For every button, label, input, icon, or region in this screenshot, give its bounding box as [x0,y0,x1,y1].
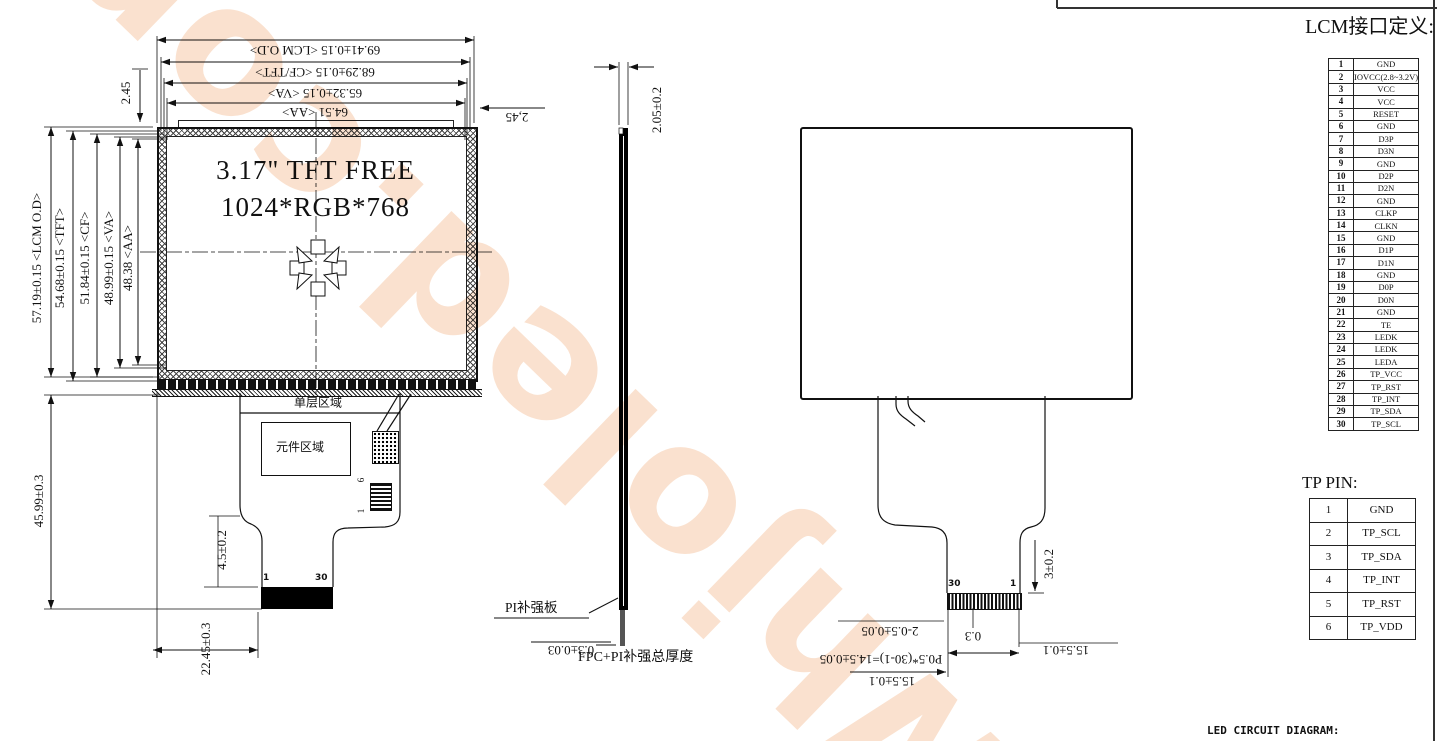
fpc-pin30-label: 30 [315,574,328,584]
dim-aa-width: 64.51 <AA> [282,105,348,119]
pin-name: CLKP [1354,207,1419,219]
dim-15-5-left: 15.5±0.1 [869,674,915,688]
screen-resolution-text: 1024*RGB*768 [166,192,465,223]
dim-bezel-right: 2,45 [506,110,529,124]
dim-fpc-height: 45.99±0.3 [32,475,46,528]
pin-name: D3N [1354,145,1419,157]
table-row: 3VCC [1329,83,1419,95]
table-row: 2TP_SCL [1310,522,1416,546]
pin-number: 25 [1329,356,1354,368]
table-row: 5TP_RST [1310,593,1416,617]
single-layer-area-label: 单层区域 [294,396,342,409]
dim-bump: 2-0.5±0.05 [862,624,919,638]
pin-name: D0P [1354,282,1419,294]
pin-number: 8 [1329,145,1354,157]
dim-15-5-right: 15.5±0.1 [1043,643,1089,657]
dim-aa-height: 48.38 <AA> [121,225,135,291]
table-row: 9GND [1329,158,1419,170]
pin-name: TP_SCL [1354,418,1419,430]
table-row: 13CLKP [1329,207,1419,219]
pin-number: 3 [1329,83,1354,95]
pin-name: D3P [1354,133,1419,145]
pin-name: TE [1354,319,1419,331]
pin-number: 14 [1329,220,1354,232]
pin-name: VCC [1354,83,1419,95]
dim-fpc-offset: 22.45±0.3 [199,623,213,676]
pin-number: 27 [1329,381,1354,393]
pin-name: TP_SCL [1348,522,1416,546]
pin-name: D2N [1354,182,1419,194]
fpc-total-thickness-label: FPC+PI补强总厚度 [578,650,693,665]
table-row: 7D3P [1329,133,1419,145]
pin-name: D1N [1354,257,1419,269]
pin-name: RESET [1354,108,1419,120]
dim-va-height: 48.99±0.15 <VA> [102,211,116,305]
tp-pin-title: TP PIN: [1302,474,1358,493]
side-view-pi-stiffener [620,610,625,646]
pin-name: GND [1354,59,1419,71]
back-fpc-connector [947,593,1022,610]
back-view-outline [800,127,1133,400]
table-row: 4VCC [1329,96,1419,108]
pin-name: GND [1354,120,1419,132]
pin-name: TP_INT [1348,569,1416,593]
table-row: 21GND [1329,306,1419,318]
table-row: 18GND [1329,269,1419,281]
pin-name: D2P [1354,170,1419,182]
dim-pin-pitch: P0.5*(30-1)=14.5±0.05 [820,652,942,666]
pin-number: 13 [1329,207,1354,219]
pin-number: 19 [1329,282,1354,294]
table-row: 30TP_SCL [1329,418,1419,430]
pin-number: 24 [1329,343,1354,355]
table-row: 6TP_VDD [1310,616,1416,640]
table-row: 12GND [1329,195,1419,207]
fpc-component-pad [372,431,399,464]
table-row: 11D2N [1329,182,1419,194]
pin-number: 7 [1329,133,1354,145]
pin-name: IOVCC(2.8~3.2V) [1354,71,1419,83]
lcm-pin-table: 1GND2IOVCC(2.8~3.2V)3VCC4VCC5RESET6GND7D… [1328,58,1419,431]
pin-number: 30 [1329,418,1354,430]
pi-stiffener-label: PI补强板 [505,601,558,616]
dim-thickness: 2.05±0.2 [650,87,664,133]
pin-name: TP_VCC [1354,368,1419,380]
fpc-6pin-connector [370,483,392,511]
pin-number: 1 [1310,499,1348,523]
pin-number: 23 [1329,331,1354,343]
dim-cf-tft-width: 68.29±0.15 <CF/TFT> [255,65,375,79]
pin-name: D1P [1354,244,1419,256]
dim-0-3: 0.3 [965,629,981,643]
pin-name: LEDK [1354,331,1419,343]
pin-number: 6 [1310,616,1348,640]
pin-name: D0N [1354,294,1419,306]
pin-name: TP_INT [1354,393,1419,405]
pin-name: TP_SDA [1354,405,1419,417]
dim-connector-depth: 3±0.2 [1042,549,1056,579]
pin-number: 15 [1329,232,1354,244]
table-row: 15GND [1329,232,1419,244]
dim-bezel-left: 2.45 [119,82,133,105]
pin-number: 28 [1329,393,1354,405]
table-row: 14CLKN [1329,220,1419,232]
table-row: 24LEDK [1329,343,1419,355]
table-row: 28TP_INT [1329,393,1419,405]
component-area-label: 元件区域 [276,441,324,454]
pin-name: LEDA [1354,356,1419,368]
dim-lcm-od-width: 69.41±0.15 <LCM O.D> [250,43,381,57]
table-row: 17D1N [1329,257,1419,269]
pin-name: GND [1354,232,1419,244]
led-circuit-diagram-label: LED CIRCUIT DIAGRAM: [1207,725,1339,737]
lcm-interface-title: LCM接口定义: [1294,16,1434,38]
pin-number: 4 [1329,96,1354,108]
fpc-pin1-label: 1 [263,574,269,584]
dim-fpc-tail: 4.5±0.2 [215,530,229,570]
pin-number: 9 [1329,158,1354,170]
pin-number: 5 [1310,593,1348,617]
dim-lcm-od-height: 57.19±0.15 <LCM O.D> [30,193,44,324]
engineering-drawing: 3.17" TFT FREE 1024*RGB*768 单层区域 元件区域 6 … [0,0,1437,741]
dim-fpc-thickness: 0.3±0.03 [548,643,594,657]
table-row: 6GND [1329,120,1419,132]
pin-name: VCC [1354,96,1419,108]
pin-number: 20 [1329,294,1354,306]
table-row: 8D3N [1329,145,1419,157]
table-row: 16D1P [1329,244,1419,256]
pin-name: TP_RST [1354,381,1419,393]
pin-number: 5 [1329,108,1354,120]
pin-name: GND [1354,158,1419,170]
pin-name: TP_VDD [1348,616,1416,640]
pin-number: 1 [1329,59,1354,71]
table-row: 25LEDA [1329,356,1419,368]
pin-name: GND [1354,195,1419,207]
tp-pin-table: 1GND2TP_SCL3TP_SDA4TP_INT5TP_RST6TP_VDD [1309,498,1416,640]
pin-number: 10 [1329,170,1354,182]
back-pin1-label: 1 [1010,580,1016,590]
pin-number: 18 [1329,269,1354,281]
table-row: 19D0P [1329,282,1419,294]
pin-number: 21 [1329,306,1354,318]
pin-number: 29 [1329,405,1354,417]
dim-cf-height: 51.84±0.15 <CF> [78,212,92,305]
pin-name: CLKN [1354,220,1419,232]
pin-number: 22 [1329,319,1354,331]
back-pin30-label: 30 [948,580,961,590]
pin-number: 16 [1329,244,1354,256]
table-row: 29TP_SDA [1329,405,1419,417]
table-row: 5RESET [1329,108,1419,120]
table-row: 3TP_SDA [1310,546,1416,570]
table-row: 10D2P [1329,170,1419,182]
pin-name: GND [1354,306,1419,318]
component-area-box: 元件区域 [261,422,351,476]
dim-va-width: 65.32±0.15 <VA> [268,86,362,100]
pin-number: 17 [1329,257,1354,269]
screen-size-text: 3.17" TFT FREE [166,155,465,186]
table-row: 23LEDK [1329,331,1419,343]
connector-pin1-label: 1 [357,509,367,514]
pin-number: 12 [1329,195,1354,207]
pin-name: GND [1354,269,1419,281]
pin-name: LEDK [1354,343,1419,355]
pin-number: 11 [1329,182,1354,194]
table-row: 1GND [1329,59,1419,71]
fpc-contact-bar [261,587,333,609]
table-row: 20D0N [1329,294,1419,306]
table-row: 2IOVCC(2.8~3.2V) [1329,71,1419,83]
pin-name: TP_SDA [1348,546,1416,570]
back-tail-outline [878,396,1045,593]
table-row: 1GND [1310,499,1416,523]
pin-number: 2 [1310,522,1348,546]
side-extension-lines [619,62,628,125]
pin-name: GND [1348,499,1416,523]
pin-number: 26 [1329,368,1354,380]
pin-number: 6 [1329,120,1354,132]
pin-name: TP_RST [1348,593,1416,617]
dim-tft-height: 54.68±0.15 <TFT> [53,208,67,308]
side-view-glass-stack [619,128,628,610]
table-row: 27TP_RST [1329,381,1419,393]
pin-number: 2 [1329,71,1354,83]
connector-pin6-label: 6 [357,478,367,483]
pin-number: 4 [1310,569,1348,593]
table-row: 4TP_INT [1310,569,1416,593]
pin-number: 3 [1310,546,1348,570]
table-row: 26TP_VCC [1329,368,1419,380]
table-row: 22TE [1329,319,1419,331]
